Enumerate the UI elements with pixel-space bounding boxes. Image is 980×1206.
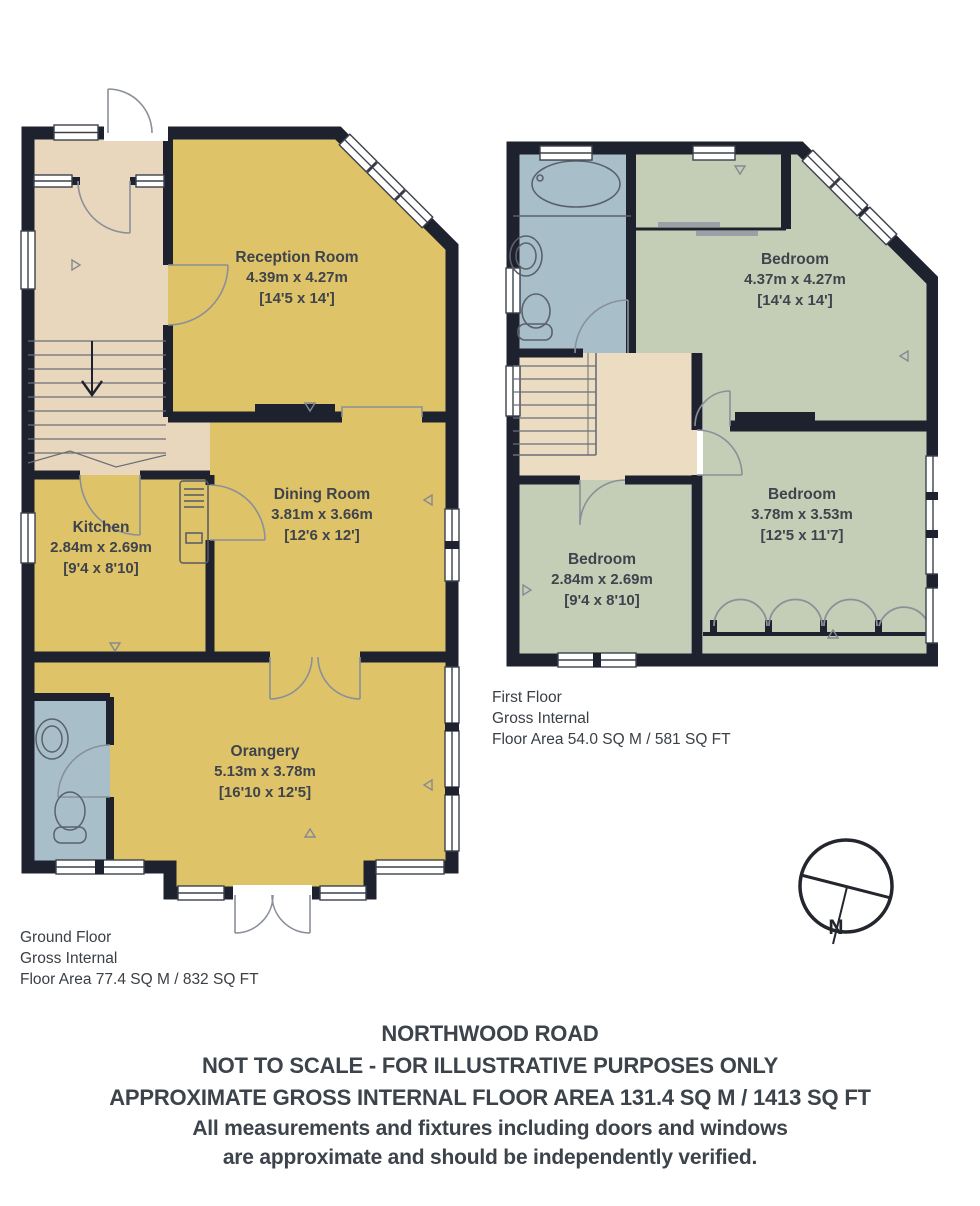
room-dims-metric: 3.78m x 3.53m [677, 505, 927, 526]
room-name: Reception Room [167, 247, 427, 268]
room-dims-imperial: [12'6 x 12'] [197, 526, 447, 547]
caption-line: Floor Area 77.4 SQ M / 832 SQ FT [20, 970, 259, 991]
room-label-dining: Dining Room 3.81m x 3.66m [12'6 x 12'] [197, 484, 447, 547]
caption-line: Gross Internal [492, 709, 731, 730]
caption-line: First Floor [492, 688, 731, 709]
room-dims-metric: 2.84m x 2.69m [25, 538, 177, 559]
room-name: Kitchen [25, 517, 177, 538]
room-label-reception: Reception Room 4.39m x 4.27m [14'5 x 14'… [167, 247, 427, 310]
room-label-bedroom-1: Bedroom 4.37m x 4.27m [14'4 x 14'] [665, 249, 925, 312]
room-name: Orangery [140, 741, 390, 762]
address-title: NORTHWOOD ROAD [0, 1018, 980, 1050]
room-dims-imperial: [9'4 x 8'10] [512, 591, 692, 612]
room-dims-metric: 4.37m x 4.27m [665, 270, 925, 291]
room-name: Bedroom [512, 549, 692, 570]
room-dims-imperial: [12'5 x 11'7] [677, 526, 927, 547]
room-name: Bedroom [677, 484, 927, 505]
footer-line: All measurements and fixtures including … [0, 1114, 980, 1143]
room-dims-imperial: [16'10 x 12'5] [140, 783, 390, 804]
footer-line: are approximate and should be independen… [0, 1143, 980, 1172]
room-label-bedroom-3: Bedroom 2.84m x 2.69m [9'4 x 8'10] [512, 549, 692, 612]
footer-disclaimer: NORTHWOOD ROAD NOT TO SCALE - FOR ILLUST… [0, 1018, 980, 1172]
footer-line: APPROXIMATE GROSS INTERNAL FLOOR AREA 13… [0, 1082, 980, 1114]
ground-floor-caption: Ground Floor Gross Internal Floor Area 7… [20, 928, 259, 990]
room-dims-metric: 3.81m x 3.66m [197, 505, 447, 526]
room-dims-imperial: [9'4 x 8'10] [25, 559, 177, 580]
room-dims-metric: 2.84m x 2.69m [512, 570, 692, 591]
caption-line: Ground Floor [20, 928, 259, 949]
room-dims-imperial: [14'5 x 14'] [167, 289, 427, 310]
room-name: Dining Room [197, 484, 447, 505]
compass-icon [788, 832, 928, 967]
room-label-kitchen: Kitchen 2.84m x 2.69m [9'4 x 8'10] [25, 517, 177, 580]
room-dims-metric: 5.13m x 3.78m [140, 762, 390, 783]
caption-line: Floor Area 54.0 SQ M / 581 SQ FT [492, 730, 731, 751]
floorplan-page: Reception Room 4.39m x 4.27m [14'5 x 14'… [0, 0, 980, 1206]
first-floor-caption: First Floor Gross Internal Floor Area 54… [492, 688, 731, 750]
room-dims-metric: 4.39m x 4.27m [167, 268, 427, 289]
room-label-bedroom-2: Bedroom 3.78m x 3.53m [12'5 x 11'7] [677, 484, 927, 547]
compass-north-label: N [816, 916, 856, 940]
footer-line: NOT TO SCALE - FOR ILLUSTRATIVE PURPOSES… [0, 1050, 980, 1082]
caption-line: Gross Internal [20, 949, 259, 970]
room-label-orangery: Orangery 5.13m x 3.78m [16'10 x 12'5] [140, 741, 390, 804]
room-dims-imperial: [14'4 x 14'] [665, 291, 925, 312]
room-name: Bedroom [665, 249, 925, 270]
